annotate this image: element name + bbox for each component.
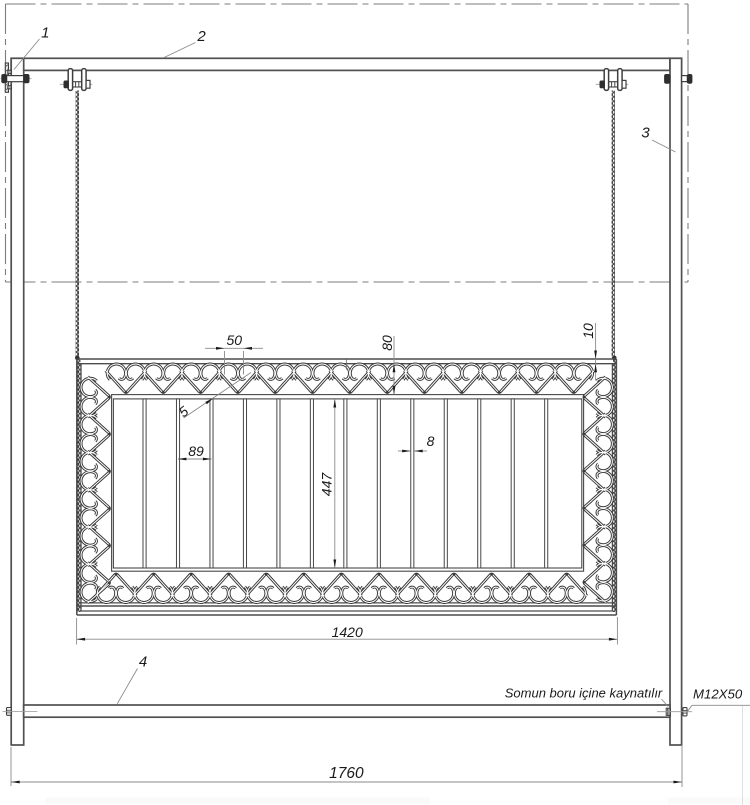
svg-text:10: 10 <box>580 323 596 339</box>
svg-text:50: 50 <box>227 332 243 348</box>
svg-text:80: 80 <box>379 335 395 351</box>
svg-text:Somun boru içine kaynatılır: Somun boru içine kaynatılır <box>505 685 663 700</box>
svg-text:1: 1 <box>41 25 49 42</box>
svg-text:1420: 1420 <box>332 624 363 640</box>
svg-text:3: 3 <box>641 125 650 142</box>
svg-text:M12X50: M12X50 <box>693 686 743 701</box>
svg-text:8: 8 <box>427 433 435 449</box>
svg-text:4: 4 <box>139 654 147 671</box>
svg-text:2: 2 <box>196 28 206 45</box>
svg-text:1760: 1760 <box>329 765 364 782</box>
svg-text:89: 89 <box>188 443 204 459</box>
svg-text:447: 447 <box>319 472 335 497</box>
